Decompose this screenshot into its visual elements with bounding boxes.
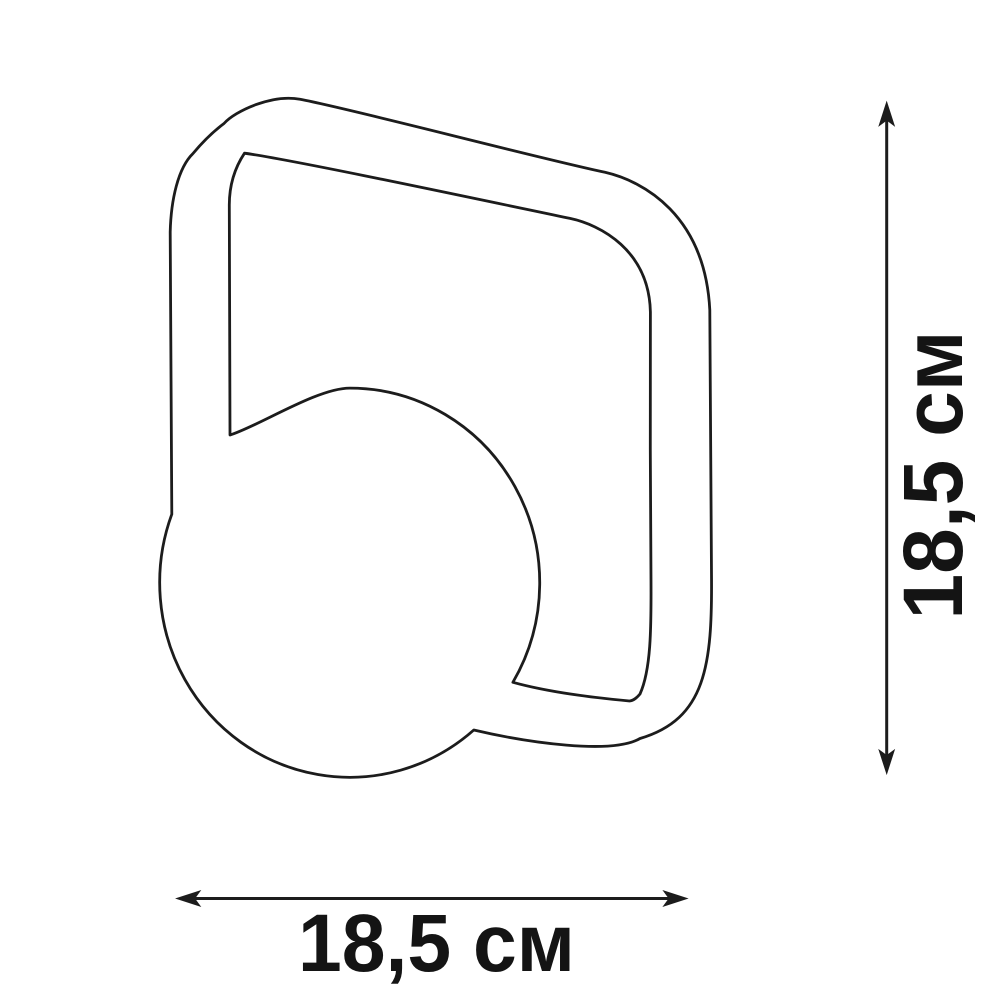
- svg-text:18,5 см: 18,5 см: [886, 331, 980, 620]
- svg-text:18,5 см: 18,5 см: [298, 898, 575, 989]
